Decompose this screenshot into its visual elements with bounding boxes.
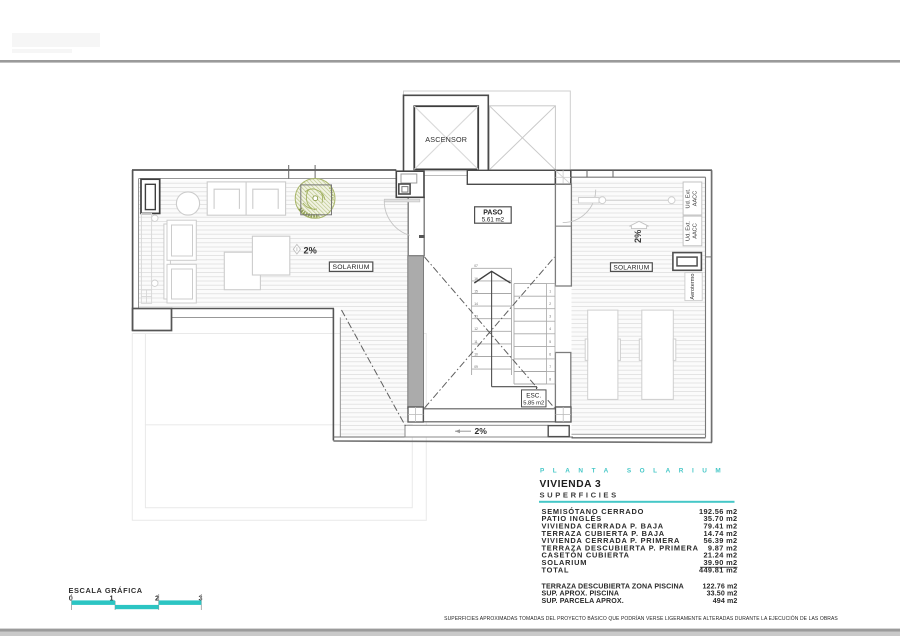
svg-text:PASO: PASO — [483, 209, 503, 216]
svg-text:7: 7 — [549, 365, 551, 369]
svg-text:3: 3 — [549, 315, 551, 319]
svg-text:PLANTA SOLARIUM: PLANTA SOLARIUM — [540, 468, 729, 475]
svg-text:SUP. PARCELA APROX.: SUP. PARCELA APROX. — [542, 597, 624, 605]
svg-text:494 m2: 494 m2 — [713, 597, 738, 605]
svg-text:SUPERFICIES: SUPERFICIES — [540, 491, 619, 500]
svg-text:07: 07 — [474, 264, 478, 268]
svg-text:2%: 2% — [304, 246, 317, 256]
svg-text:10: 10 — [474, 352, 478, 356]
svg-text:4: 4 — [549, 327, 551, 331]
svg-text:15: 15 — [474, 289, 478, 293]
svg-text:ESCALA GRÁFICA: ESCALA GRÁFICA — [69, 586, 143, 595]
svg-text:Ud. Ext.: Ud. Ext. — [686, 188, 692, 208]
svg-text:6: 6 — [549, 352, 551, 356]
svg-text:SOLARIUM: SOLARIUM — [613, 265, 649, 272]
svg-text:ESC.: ESC. — [526, 392, 541, 399]
svg-text:14: 14 — [474, 302, 478, 306]
svg-text:13: 13 — [474, 315, 478, 319]
svg-text:5.85 m2: 5.85 m2 — [523, 401, 544, 407]
svg-text:5: 5 — [549, 340, 551, 344]
svg-text:2%: 2% — [633, 230, 643, 243]
svg-text:TOTAL: TOTAL — [542, 565, 570, 574]
svg-text:Aerotermo: Aerotermo — [690, 274, 696, 300]
svg-text:8: 8 — [549, 378, 551, 382]
svg-text:12: 12 — [474, 327, 478, 331]
svg-text:2: 2 — [549, 302, 551, 306]
svg-text:09: 09 — [474, 365, 478, 369]
svg-text:Ud. Ext.: Ud. Ext. — [686, 221, 692, 241]
svg-text:1: 1 — [549, 290, 551, 294]
svg-text:VIVIENDA 3: VIVIENDA 3 — [540, 479, 602, 490]
svg-text:SOLARIUM: SOLARIUM — [333, 264, 370, 271]
svg-text:SUPERFICIES APROXIMADAS TOMADA: SUPERFICIES APROXIMADAS TOMADAS DEL PROY… — [444, 615, 838, 622]
svg-text:11: 11 — [474, 340, 478, 344]
svg-text:449.81 m2: 449.81 m2 — [699, 565, 738, 574]
svg-text:2%: 2% — [475, 426, 488, 436]
svg-text:AACC: AACC — [693, 223, 699, 239]
svg-text:AACC: AACC — [693, 191, 699, 207]
svg-text:5.61 m2: 5.61 m2 — [482, 216, 505, 223]
svg-text:ASCENSOR: ASCENSOR — [425, 135, 467, 144]
